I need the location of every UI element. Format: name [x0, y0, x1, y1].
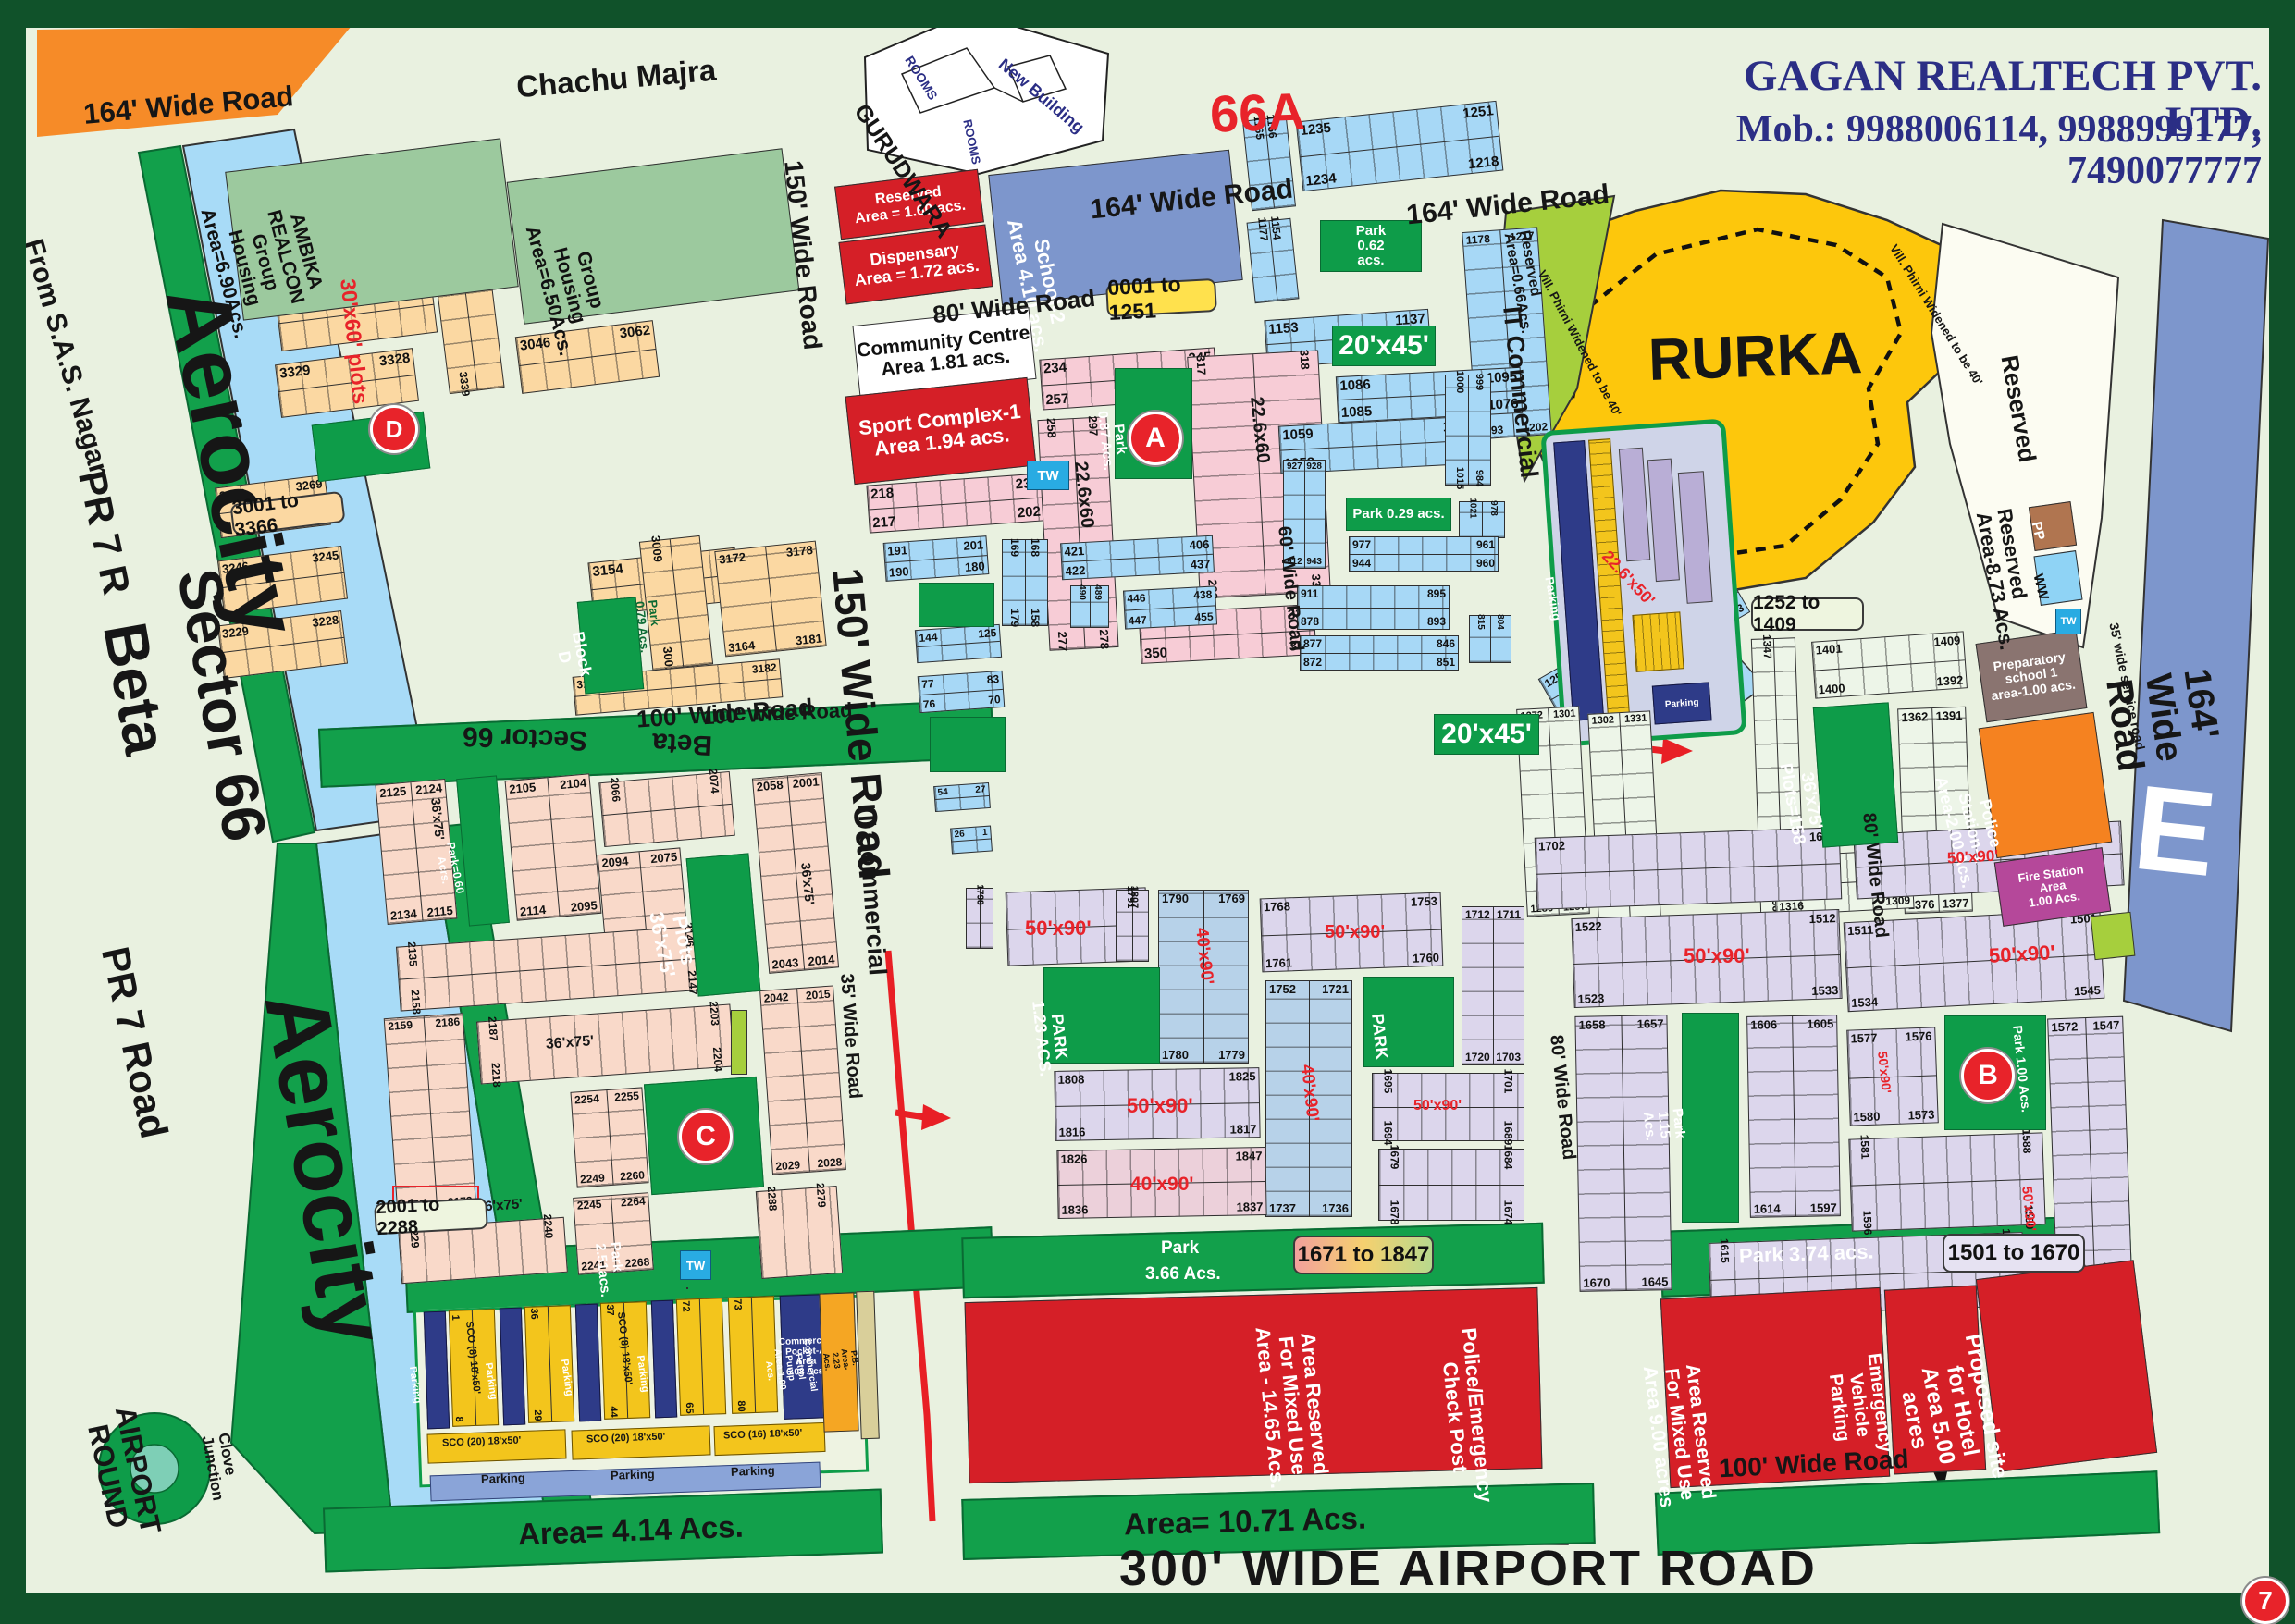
plot-number: 2124 [415, 781, 443, 796]
plot-number: 960 [1476, 557, 1495, 570]
plot-number: 317 [1194, 354, 1209, 375]
plot-number: 1807 [1129, 886, 1140, 908]
park-029: Park 0.29 acs. [1346, 498, 1451, 531]
plot-number: 1670 [1583, 1275, 1610, 1290]
range-badge-2001: 2001 to 2288 [374, 1198, 488, 1235]
plot-number: 2264 [620, 1195, 646, 1210]
plot-number: 1695 [1381, 1069, 1394, 1094]
petrol-label: Commercial Petrol Pump Area 1.00 Acs. [761, 1338, 819, 1397]
plot-number: 1547 [2092, 1018, 2119, 1033]
plot-number: 44 [608, 1406, 619, 1418]
plot-number: 1645 [1641, 1274, 1668, 1289]
frame-top [0, 0, 2295, 28]
plot-number: 1588 [2020, 1128, 2034, 1153]
tw-box-top: TW [1027, 461, 1069, 490]
plot-number: 1573 [1907, 1107, 1934, 1122]
plot-number: 180 [965, 559, 986, 573]
park-251-label: Park 2.51acs. [592, 1241, 627, 1298]
plot-number: 943 [1306, 557, 1322, 567]
plot-block: 1679168416781674 [1378, 1149, 1524, 1221]
plot-number: 2042 [763, 990, 789, 1005]
plot-block: 977961944960 [1349, 536, 1499, 572]
plot-number: 1780 [1162, 1048, 1189, 1062]
plot-block: 191201190180 [883, 535, 990, 582]
lime-corner [2091, 912, 2136, 960]
plot-number: 1817 [1229, 1122, 1256, 1137]
size-label-2045-box2: 20'x45' [1434, 714, 1539, 755]
plot-number: 2014 [808, 953, 835, 968]
park-366-label-b: 3.66 Acs. [1145, 1265, 1221, 1284]
plot-number: 72 [680, 1300, 691, 1312]
pp-box: PP [2029, 501, 2077, 551]
plot-number: 1711 [1497, 908, 1521, 921]
plot-number: 1606 [1750, 1017, 1777, 1032]
plot-number: 2125 [379, 784, 407, 800]
plot-number: 437 [1190, 557, 1210, 572]
plot-number: 455 [1194, 610, 1214, 624]
plot-number: 217 [872, 514, 896, 532]
plot-number: 3245 [312, 547, 340, 564]
red-arrowhead-1 [1661, 738, 1693, 764]
plot-number: 29 [532, 1409, 543, 1421]
park-115-label: Park 1.15 Acs. [1638, 1095, 1689, 1155]
plot-number: 1847 [1235, 1149, 1262, 1163]
plot-block: 10009991015984 [1445, 375, 1491, 486]
park-block [919, 583, 994, 627]
size-5090-1: 50'x90' [1025, 917, 1092, 939]
mixed-use-1465-label: Area Reserved For Mixed Use Area - 14.65… [1251, 1322, 1333, 1489]
plot-number: 895 [1427, 587, 1446, 600]
plot-number: 1347 [1760, 634, 1774, 659]
plot-number: 1679 [1388, 1145, 1400, 1170]
size-5090-5: 50'x90' [1947, 848, 1999, 867]
plot-number: 1392 [1936, 672, 1964, 688]
plot-block: 911895878893 [1297, 585, 1450, 630]
plot-number: 350 [1144, 645, 1168, 661]
plot-number: 65 [684, 1402, 695, 1414]
range-badge-3001: 3001 to 3366 [229, 491, 345, 536]
plot-number: 3046 [519, 335, 551, 354]
plot-number: 1694 [1381, 1121, 1394, 1146]
plot-number: 278 [1097, 629, 1112, 649]
size-label-3675-2: 36'x75' [545, 1034, 594, 1053]
plot-number: 218 [870, 486, 895, 503]
plot-number: 1769 [1218, 892, 1245, 905]
plot-number: 1218 [1467, 154, 1499, 172]
company-phone: Mob.: 9988006114, 9988999177, 7490077777 [1596, 109, 2262, 191]
plot-number: 2255 [614, 1089, 640, 1104]
size-5090-6: 50'x90' [1684, 945, 1750, 966]
pocket-pavement-block [1632, 611, 1684, 671]
plot-block: 815804 [1469, 615, 1511, 663]
plot-number: 927 [1287, 461, 1302, 472]
size-5090-4: 50'x90' [1413, 1099, 1462, 1114]
plot-number: 2135 [405, 941, 420, 967]
plot-block: 20662074 [598, 771, 735, 847]
plot-number: 944 [1352, 557, 1371, 570]
plot-number: 438 [1193, 588, 1213, 602]
plot-number: 1000 [1454, 371, 1465, 393]
plot-number: 54 [937, 787, 948, 798]
plot-number: 2279 [814, 1182, 829, 1208]
plot-number: 1703 [1496, 1051, 1521, 1064]
plot-number: 70 [988, 693, 1001, 707]
park-plots3675-a: Plots 36'x75' [686, 853, 761, 996]
plot-block: 11771154 [1247, 218, 1300, 304]
e-zone-letter: E [2128, 764, 2222, 899]
sco-column: 7265 [676, 1298, 726, 1416]
plot-block: 3172317831643181 [714, 541, 826, 658]
plot-number: 2104 [560, 776, 587, 792]
parking-bar-2: Parking [500, 1308, 525, 1426]
plot-number: 1409 [1933, 634, 1961, 649]
plot-number: 1737 [1269, 1201, 1296, 1215]
plot-number: 928 [1306, 461, 1322, 472]
parking-bar-4: Parking [651, 1300, 677, 1419]
beta-road-label: Beta [651, 727, 713, 759]
plot-number: 1523 [1577, 991, 1604, 1006]
plot-number: 3178 [785, 543, 813, 560]
marker-a: A [1129, 412, 1182, 465]
plot-number: 815 [1475, 614, 1486, 630]
parking-strip-label-1: Parking [481, 1471, 525, 1485]
range-badge-1252: 1252 to 1409 [1751, 597, 1864, 631]
plot-number: 2075 [650, 850, 678, 866]
plot-number: 26 [954, 830, 965, 841]
plot-block: 17911807 [1116, 890, 1149, 962]
plot-block: 490489 [1070, 585, 1109, 628]
plot-number: 447 [1128, 613, 1147, 627]
size-label-3675-4: 36'x75' [798, 862, 817, 905]
plot-number: 27 [975, 784, 986, 795]
plot-number: 158 [1029, 609, 1042, 627]
plot-number: 277 [1055, 631, 1070, 651]
plot-number: 2058 [756, 778, 784, 794]
emergency-parking-label: Emergency Vehicle Parking [1823, 1352, 1896, 1458]
plot-block: 77837670 [918, 671, 1006, 713]
plot-number: 1400 [1818, 681, 1845, 696]
plot-number: 2094 [601, 854, 629, 869]
plot-number: 1825 [1228, 1069, 1255, 1084]
plot-number: 2186 [435, 1015, 461, 1030]
plot-number: 804 [1495, 614, 1505, 630]
plot-number: 1178 [1465, 232, 1490, 247]
page-number: 7 [2258, 1586, 2273, 1616]
plot-number: 2203 [708, 1001, 722, 1027]
e-zone-band [2124, 220, 2268, 1031]
parking-bar-1: Parking [424, 1311, 450, 1430]
page-number-circle: 7 [2242, 1578, 2289, 1624]
plot-number: 37 [604, 1304, 615, 1316]
mixed-use-1465-block: Area Reserved For Mixed Use Area - 14.65… [965, 1287, 1543, 1483]
plot-number: 1059 [1282, 426, 1314, 444]
plot-number: 1302 [1591, 714, 1614, 726]
plot-block: 144125 [915, 624, 1002, 663]
plot-number: 2134 [389, 906, 417, 922]
marker-b: B [1961, 1049, 2015, 1102]
plot-number: 1689 [1502, 1121, 1515, 1146]
park-115: Park 1.15 Acs. [1682, 1013, 1739, 1223]
park-block [930, 717, 1006, 772]
ww-box: WW [2033, 550, 2082, 606]
plot-number: 2218 [488, 1063, 503, 1089]
plot-number: 3062 [619, 323, 651, 342]
park-079-label: Park 0.79 Acs. [634, 599, 664, 653]
plot-number: 2015 [805, 988, 831, 1003]
sector-code-66a: 66A [1209, 83, 1306, 141]
plot-number: 2288 [765, 1186, 780, 1212]
plot-block: 1606160516141597 [1746, 1015, 1841, 1218]
size-5090-2: 50'x90' [1325, 923, 1385, 942]
plot-number: 2115 [426, 904, 453, 919]
plot-number: 1657 [1637, 1016, 1664, 1031]
plot-block: 1712171117201703 [1462, 906, 1524, 1065]
hotel-block: Proposed site for Hotel Area 5.00 acres [1976, 1260, 2157, 1471]
plot-number: 1779 [1218, 1048, 1245, 1062]
plot-number: 893 [1427, 615, 1446, 628]
plot-number: 1533 [1811, 983, 1838, 998]
plot-number: 2245 [576, 1198, 602, 1212]
plot-number: 1701 [1502, 1069, 1515, 1094]
plot-number: 846 [1437, 637, 1455, 650]
spacer [686, 1287, 688, 1289]
pocket-apartment-bar [1619, 448, 1650, 562]
plot-number: 83 [986, 672, 999, 686]
site-plan-poster: { "header": { "company": "GAGAN REALTECH… [0, 0, 2295, 1622]
plot-number: 2249 [580, 1171, 606, 1186]
plot-number: 3181 [795, 631, 822, 647]
plot-number: 179 [1008, 609, 1021, 627]
plot-number: 76 [922, 697, 935, 711]
plot-number: 1251 [1462, 103, 1494, 121]
plot-number: 257 [1045, 391, 1069, 409]
sector66-road-label: Sector 66 [462, 721, 587, 755]
plot-number: 1736 [1322, 1201, 1349, 1215]
plot-block: 22882279 [756, 1186, 843, 1279]
plot-number: 77 [921, 677, 934, 691]
plot-number: 1086 [1339, 376, 1371, 394]
size-4090-3: 40'x90' [1130, 1175, 1193, 1195]
parking-strip-label-2: Parking [611, 1468, 655, 1482]
plot-number: 422 [1065, 563, 1085, 578]
plot-number: 1658 [1578, 1017, 1605, 1032]
plot-number: 1614 [1754, 1201, 1781, 1216]
plot-number: 201 [963, 537, 984, 552]
plot-number: 961 [1476, 538, 1495, 551]
plot-number: 2187 [486, 1016, 500, 1042]
plot-number: 2260 [620, 1168, 646, 1183]
plot-number: 1752 [1269, 982, 1296, 996]
tw-box-right: TW [2055, 609, 2081, 634]
lime-sliver [731, 1010, 747, 1075]
tw-box-mid: TW [680, 1250, 711, 1280]
plot-block: 2254225522492260 [570, 1087, 648, 1187]
plot-number: 2029 [775, 1158, 801, 1173]
frame-right [2269, 0, 2295, 1622]
plot-number: 1577 [1850, 1031, 1877, 1046]
plot-number: 234 [1043, 360, 1067, 377]
plot-number: 1799 [974, 884, 984, 904]
plot-number: 1581 [1858, 1134, 1872, 1159]
plot-number: 8 [453, 1416, 464, 1422]
plot-number: 1572 [2051, 1019, 2078, 1034]
plot-number: 872 [1303, 656, 1322, 669]
plot-number: 421 [1064, 544, 1084, 559]
plot-number: 978 [1488, 500, 1499, 516]
plot-number: 2158 [409, 990, 424, 1015]
plot-block: 1581158815961589 [1848, 1132, 2045, 1231]
plot-number: 1 [982, 828, 988, 838]
plot-number: 1512 [1808, 911, 1835, 926]
plot-number: 1576 [1905, 1028, 1931, 1043]
plot-number: 490 [1077, 584, 1087, 600]
police-station-block: Police Station-1 Area-2.00 Acs. [1979, 712, 2113, 858]
plot-number: 1301 [1553, 708, 1576, 720]
plot-number: 1761 [1265, 955, 1292, 970]
plot-number: 190 [888, 564, 909, 579]
area-1071-label: Area= 10.71 Acs. [1124, 1503, 1367, 1542]
pp-label: PP [2028, 520, 2047, 541]
plot-number: 1401 [1815, 642, 1843, 658]
plot-number: 2043 [771, 955, 799, 971]
park-374-label: Park 3.74 acs. [1739, 1240, 1874, 1266]
plot-number: 3009 [648, 535, 665, 562]
plot-number: 1331 [1624, 713, 1647, 725]
plot-number: 36 [528, 1308, 539, 1320]
park-366-label-a: Park [1161, 1239, 1199, 1258]
plot-number: 1702 [1538, 839, 1565, 854]
plot-number: 1 [450, 1314, 461, 1321]
plot-number: 3154 [592, 561, 624, 580]
pocket-apartment-bar [1678, 471, 1713, 604]
plot-number: 1826 [1060, 1151, 1087, 1166]
plot-number: 2254 [574, 1092, 600, 1107]
plot-number: 191 [887, 543, 908, 558]
plot-number: 202 [1017, 504, 1041, 522]
airport-road-label: 300' WIDE AIRPORT ROAD [1119, 1543, 1818, 1595]
plot-number: 3329 [278, 363, 311, 382]
plot-number: 1760 [1413, 951, 1439, 966]
plot-number: 1522 [1574, 919, 1601, 934]
plot-number: 1615 [1718, 1238, 1732, 1263]
plot-block: 1086109510851076 [1336, 367, 1523, 423]
plot-number: 168 [1029, 538, 1042, 557]
plot-block: 169168179158 [1002, 539, 1048, 626]
plot-number: 3182 [751, 661, 777, 676]
plot-number: 2066 [608, 777, 623, 803]
plot-block: 5427 [933, 782, 991, 812]
park-123: PARK 1.23 ACS. [1043, 967, 1160, 1064]
plot-number: 446 [1127, 591, 1146, 605]
plot-number: 258 [1044, 418, 1059, 438]
red-arrowhead-2 [921, 1104, 951, 1130]
plot-number: 1836 [1061, 1202, 1088, 1217]
plot-number: 1362 [1901, 709, 1928, 724]
marker-d: D [370, 405, 418, 453]
plot-number: 1021 [1468, 498, 1478, 518]
rurka-label: RURKA [1647, 322, 1863, 392]
range-badge-0001: 0001 to 1251 [1105, 278, 1217, 317]
park-plots-158: 36'x75' Plots=158 [1813, 702, 1898, 847]
plot-number: 73 [732, 1298, 743, 1310]
plot-block: 2042201520292028 [759, 985, 846, 1175]
plot-block: 877846872851 [1300, 635, 1459, 671]
plot-number: 80 [735, 1400, 746, 1412]
plot-number: 1580 [1853, 1110, 1880, 1125]
plot-number: 489 [1092, 584, 1103, 600]
plot-number: 2095 [570, 898, 598, 914]
plot-number: 318 [1298, 349, 1313, 369]
plot-number: 977 [1352, 538, 1371, 551]
plot-number: 2204 [710, 1047, 725, 1073]
plot-number: 1153 [1268, 320, 1300, 338]
plot-number: 3339 [457, 371, 473, 397]
map-canvas: 7 164' Wide Road Chachu Majra 66A GAGAN … [0, 0, 2295, 1622]
plot-number: 1816 [1058, 1125, 1085, 1139]
plot-number: 911 [1301, 587, 1318, 600]
plot-number: 1154 [1268, 215, 1284, 240]
plot-number: 2105 [509, 780, 537, 795]
plot-number: 851 [1437, 656, 1455, 669]
plot-number: 2268 [624, 1255, 650, 1270]
plot-number: 1596 [1860, 1210, 1874, 1235]
plot-number: 1674 [1502, 1200, 1515, 1225]
plot-number: 2028 [817, 1155, 843, 1170]
plot-number: 169 [1008, 538, 1021, 557]
pocket-apartment-bar [1647, 459, 1680, 582]
plot-number: 3164 [728, 638, 756, 655]
size-label-2045-box1: 20'x45' [1332, 326, 1436, 366]
plot-block: 446438447455 [1123, 585, 1217, 629]
frame-bottom [0, 1593, 2295, 1622]
plot-number: 1720 [1465, 1051, 1490, 1064]
frame-left [0, 0, 26, 1622]
plot-number: 3328 [378, 351, 411, 370]
plot-number: 1712 [1465, 908, 1490, 921]
plot-number: 1768 [1264, 899, 1290, 914]
park-062: Park 0.62 acs. [1320, 220, 1422, 272]
block-d-label: Block D [551, 630, 596, 682]
parking-strip-label-3: Parking [731, 1464, 775, 1478]
plot-number: 2001 [792, 774, 820, 790]
marker-c: C [679, 1110, 733, 1163]
plot-number: 1837 [1236, 1200, 1263, 1214]
size-5090-3: 50'x90' [1127, 1095, 1193, 1116]
park-123-label: PARK 1.23 ACS. [1028, 998, 1071, 1077]
park-plain: PARK [1363, 977, 1454, 1067]
plot-number: 1234 [1305, 170, 1338, 189]
pocket-parking-small: Parking [1652, 682, 1712, 724]
plot-number: 1721 [1322, 982, 1349, 996]
plot-block: 261 [950, 825, 993, 854]
size-5090-8: 50'x90' [1875, 1051, 1894, 1094]
range-badge-1671: 1671 to 1847 [1293, 1236, 1434, 1274]
plot-number: 125 [978, 626, 997, 640]
plot-number: 1753 [1411, 894, 1437, 909]
plot-block: 2159218621722173 [384, 1013, 477, 1213]
plot-number: 2114 [519, 903, 546, 918]
plot-number: 1015 [1454, 467, 1465, 489]
park-plain-label: PARK [1368, 1013, 1391, 1060]
plot-number: 1790 [1162, 892, 1189, 905]
plot-block: 2105210421142095 [505, 773, 602, 920]
plot-number: 2074 [707, 769, 722, 794]
plot-block: 1401140914001392 [1811, 631, 1968, 698]
size-5090-7: 50'x90' [1988, 941, 2055, 966]
plot-number: 406 [1189, 537, 1209, 552]
parking-bar-3: Parking [575, 1304, 601, 1422]
plot-number: 1391 [1935, 708, 1962, 723]
